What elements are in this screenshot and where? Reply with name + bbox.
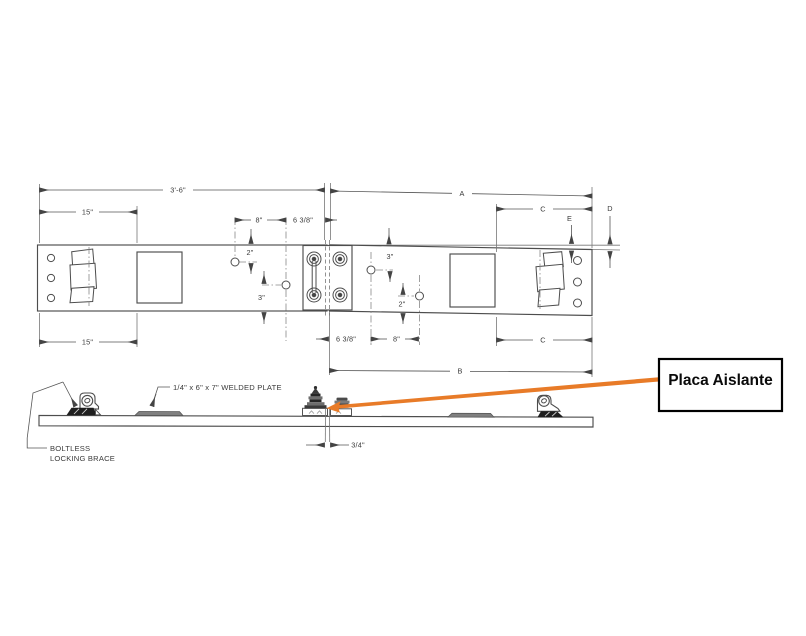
dim-label: 8" — [393, 335, 400, 344]
dim-638-bottom: 6 3/8" — [316, 335, 356, 344]
dim-label: 15" — [82, 208, 94, 217]
pilot-hole — [416, 292, 424, 300]
dim-label: 2" — [398, 300, 405, 309]
dim-b: B — [330, 367, 593, 376]
dim-label: A — [459, 189, 464, 198]
dim-a: A — [331, 189, 593, 198]
brace-bar — [39, 415, 593, 427]
dim-3-6: 3'-6" — [40, 186, 325, 195]
welded-plate-left — [135, 412, 183, 416]
dim-c-top: C — [497, 205, 593, 214]
dim-label: 3" — [386, 252, 393, 261]
pilot-hole — [231, 258, 239, 266]
clamp-wedge — [67, 408, 98, 415]
hinge-fitting-left — [70, 247, 97, 306]
dim-label: D — [607, 204, 612, 213]
bolt — [307, 288, 321, 302]
dim-label: C — [540, 336, 545, 345]
eye-lug-left — [67, 393, 101, 415]
dim-8-bottom: 8" — [371, 335, 419, 344]
square-cutout-right — [450, 254, 495, 307]
bottom-dimensions: 15" 6 3/8" 8" B C — [40, 313, 593, 377]
dim-label: 15" — [82, 338, 94, 347]
dim-label: B — [457, 367, 462, 376]
plan-view — [38, 218, 621, 345]
dim-label: 8" — [255, 216, 262, 225]
pilot-hole — [282, 281, 290, 289]
hole — [574, 299, 582, 307]
clamp-wedge — [538, 411, 564, 417]
callout-arrow — [327, 377, 660, 412]
callout: Placa Aislante — [327, 359, 783, 413]
hole — [47, 274, 54, 281]
hole — [574, 278, 582, 286]
brace-note-line2: LOCKING BRACE — [50, 454, 115, 463]
dim-d: D — [607, 204, 612, 268]
insulator-stack — [305, 386, 327, 409]
hole — [574, 257, 582, 265]
bolt — [333, 288, 347, 302]
dim-label: 3'-6" — [170, 186, 186, 195]
dim-label: E — [567, 214, 572, 223]
square-cutout-left — [137, 252, 182, 303]
brace-note-line1: BOLTLESS — [50, 444, 90, 453]
brace-drawing: 3'-6" A 15" 8" 6 3/8" C E — [0, 0, 806, 636]
bolt — [307, 252, 321, 266]
insulator-assembly — [303, 386, 352, 442]
dim-label: 6 3/8" — [293, 216, 313, 225]
eye-lug-right — [538, 395, 564, 417]
hole — [47, 294, 54, 301]
dim-15-top: 15" — [40, 208, 138, 217]
dim-c-bottom: C — [497, 336, 593, 345]
welded-plate-note-label: 1/4" x 6" x 7" WELDED PLATE — [173, 383, 282, 392]
callout-label: Placa Aislante — [668, 372, 773, 389]
dim-label: 3" — [258, 293, 265, 302]
dim-label: 2" — [246, 248, 253, 257]
plate-edge-extension — [592, 250, 620, 251]
dim-3-4: 3/4" — [306, 441, 365, 450]
dim-label: 3/4" — [351, 441, 365, 450]
weld-pad — [303, 408, 328, 415]
dim-label: C — [540, 205, 545, 214]
dim-15-bottom: 15" — [40, 338, 138, 347]
pilot-hole — [367, 266, 375, 274]
bolt — [333, 252, 347, 266]
dim-label: 6 3/8" — [336, 335, 356, 344]
hole — [47, 254, 54, 261]
technical-drawing-page: 3'-6" A 15" 8" 6 3/8" C E — [0, 0, 806, 636]
welded-plate-note: 1/4" x 6" x 7" WELDED PLATE — [152, 383, 282, 406]
welded-plate-right — [448, 413, 494, 417]
dim-8-top: 8" — [235, 216, 286, 225]
